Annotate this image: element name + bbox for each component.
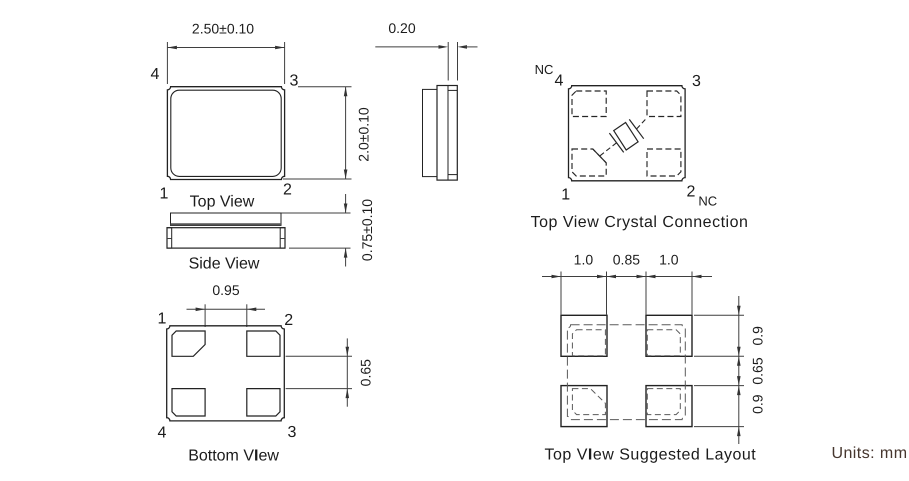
svg-text:NC: NC [698,194,717,209]
svg-text:Iew: Iew [254,448,279,465]
svg-text:4: 4 [158,425,167,442]
svg-text:2.0±0.10: 2.0±0.10 [356,107,372,162]
svg-text:1: 1 [160,186,169,203]
svg-text:4: 4 [555,73,564,90]
svg-text:1.0: 1.0 [659,252,679,268]
svg-text:0.20: 0.20 [388,20,415,36]
svg-text:1.0: 1.0 [574,252,594,268]
svg-text:3: 3 [288,424,297,441]
svg-text:4: 4 [151,66,160,83]
svg-text:Units: mm: Units: mm [831,445,907,462]
svg-text:0.65: 0.65 [750,357,766,384]
svg-text:0.9: 0.9 [750,394,766,414]
svg-text:0.65: 0.65 [358,359,374,386]
svg-text:2: 2 [283,182,292,199]
svg-text:NC: NC [535,62,554,77]
svg-text:3: 3 [290,73,299,90]
svg-text:Top View Crystal Connection: Top View Crystal Connection [531,214,749,231]
svg-text:Iew Suggested Layout: Iew Suggested Layout [588,447,756,464]
svg-text:0.85: 0.85 [613,252,640,268]
svg-text:0.95: 0.95 [212,282,239,298]
svg-text:1: 1 [158,311,167,328]
svg-text:2: 2 [284,312,293,329]
svg-text:2.50±0.10: 2.50±0.10 [192,21,254,37]
svg-text:3: 3 [692,73,701,90]
svg-text:0.9: 0.9 [750,326,766,346]
svg-text:Side View: Side View [189,256,260,273]
svg-text:Top View: Top View [190,193,255,210]
svg-text:1: 1 [561,187,570,204]
svg-text:Top V: Top V [544,447,587,464]
svg-text:Bottom V: Bottom V [188,448,254,465]
svg-text:2: 2 [687,184,696,201]
svg-text:0.75±0.10: 0.75±0.10 [359,199,375,261]
